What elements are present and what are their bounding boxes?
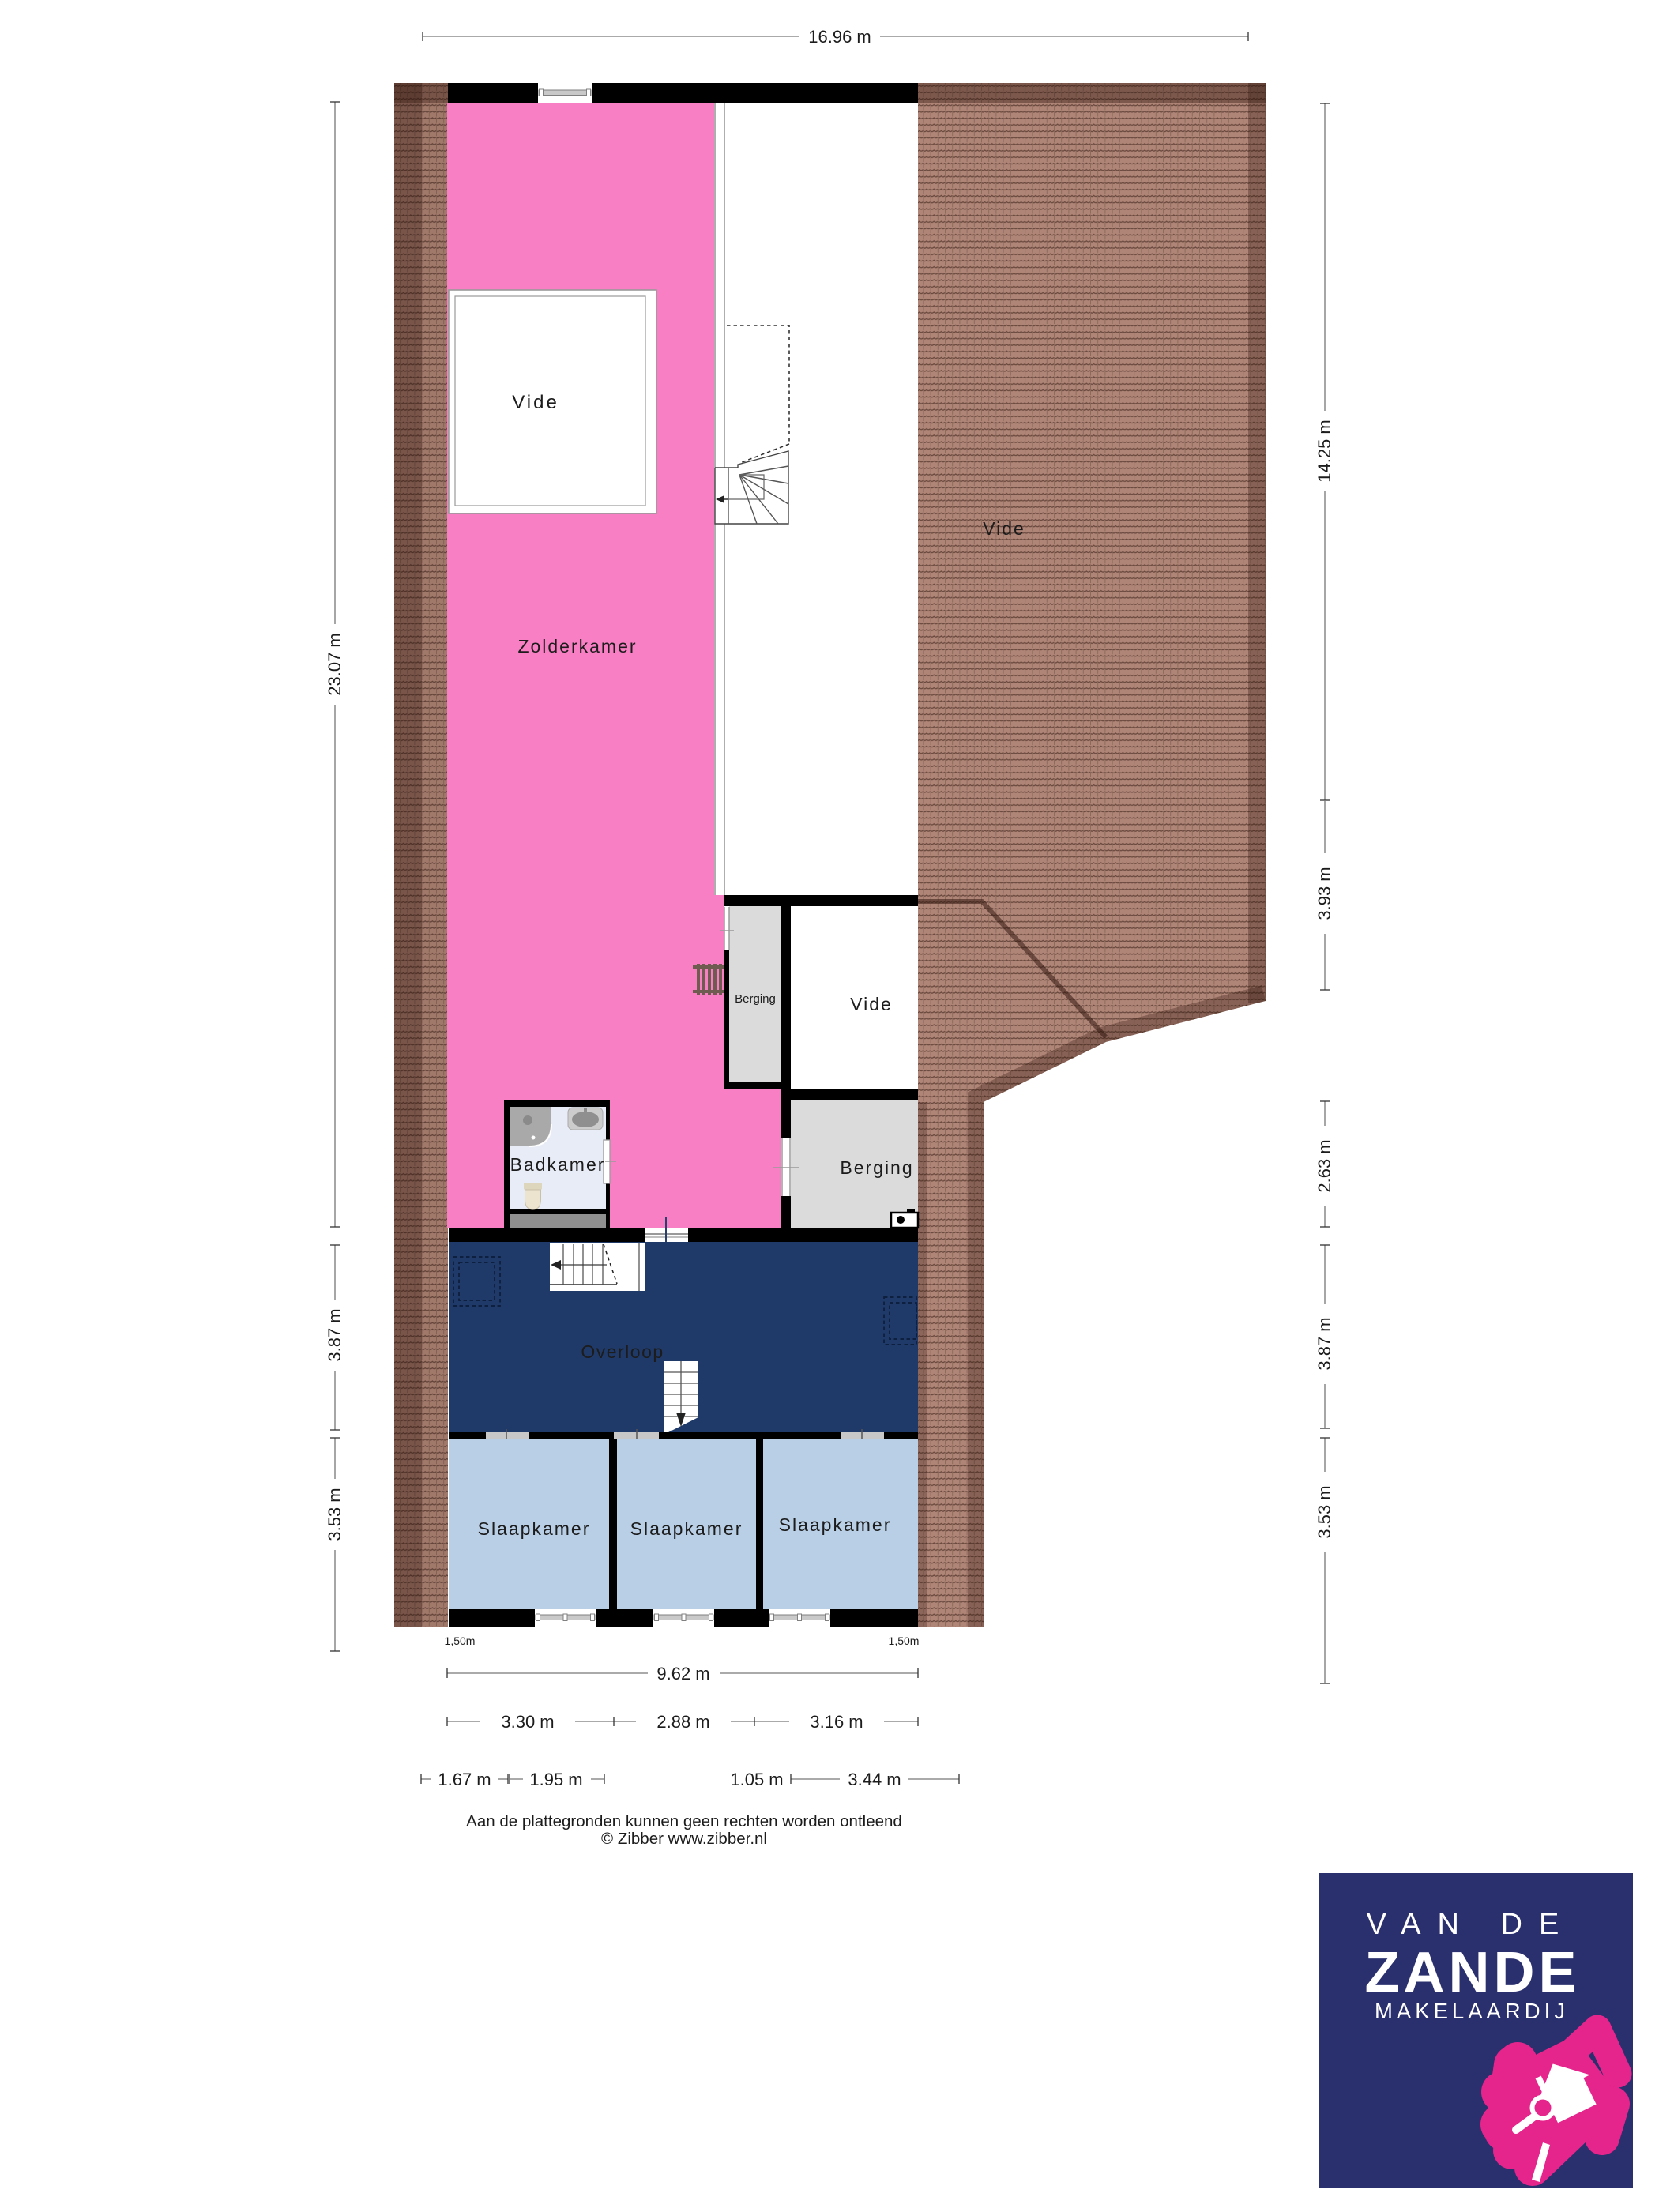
svg-text:1.67 m: 1.67 m [438,1770,491,1789]
svg-text:Slaapkamer: Slaapkamer [779,1514,892,1535]
svg-text:Berging: Berging [735,992,776,1006]
svg-text:Vide: Vide [850,994,893,1014]
svg-text:Vide: Vide [983,518,1025,539]
svg-text:3.87 m: 3.87 m [325,1308,344,1361]
svg-text:Slaapkamer: Slaapkamer [630,1518,743,1539]
svg-text:Slaapkamer: Slaapkamer [478,1518,591,1539]
svg-text:3.93 m: 3.93 m [1315,867,1334,920]
svg-text:1,50m: 1,50m [889,1635,920,1647]
svg-text:3.53 m: 3.53 m [325,1488,344,1540]
svg-text:3.87 m: 3.87 m [1315,1317,1334,1370]
svg-text:1,50m: 1,50m [445,1635,476,1647]
svg-text:23.07 m: 23.07 m [325,633,344,696]
svg-text:3.16 m: 3.16 m [810,1712,863,1732]
svg-text:Overloop: Overloop [581,1341,664,1362]
svg-text:3.53 m: 3.53 m [1315,1485,1334,1538]
svg-text:3.30 m: 3.30 m [501,1712,554,1732]
svg-text:3.44 m: 3.44 m [848,1770,901,1789]
svg-text:1.95 m: 1.95 m [529,1770,582,1789]
svg-text:2.63 m: 2.63 m [1315,1139,1334,1192]
svg-text:VAN DE: VAN DE [1367,1908,1576,1941]
svg-text:16.96 m: 16.96 m [808,27,871,47]
svg-text:MAKELAARDIJ: MAKELAARDIJ [1375,1999,1569,2023]
svg-text:Aan de plattegronden kunnen ge: Aan de plattegronden kunnen geen rechten… [466,1812,902,1830]
svg-text:© Zibber www.zibber.nl: © Zibber www.zibber.nl [601,1830,767,1848]
svg-text:Vide: Vide [512,392,559,413]
svg-text:1.05 m: 1.05 m [730,1770,783,1789]
svg-text:Zolderkamer: Zolderkamer [517,636,637,656]
svg-text:ZANDE: ZANDE [1365,1941,1581,2004]
svg-text:Berging: Berging [840,1157,913,1178]
svg-text:14.25 m: 14.25 m [1315,419,1334,483]
svg-text:9.62 m: 9.62 m [656,1664,709,1683]
svg-text:2.88 m: 2.88 m [656,1712,709,1732]
svg-text:Badkamer: Badkamer [510,1154,606,1175]
